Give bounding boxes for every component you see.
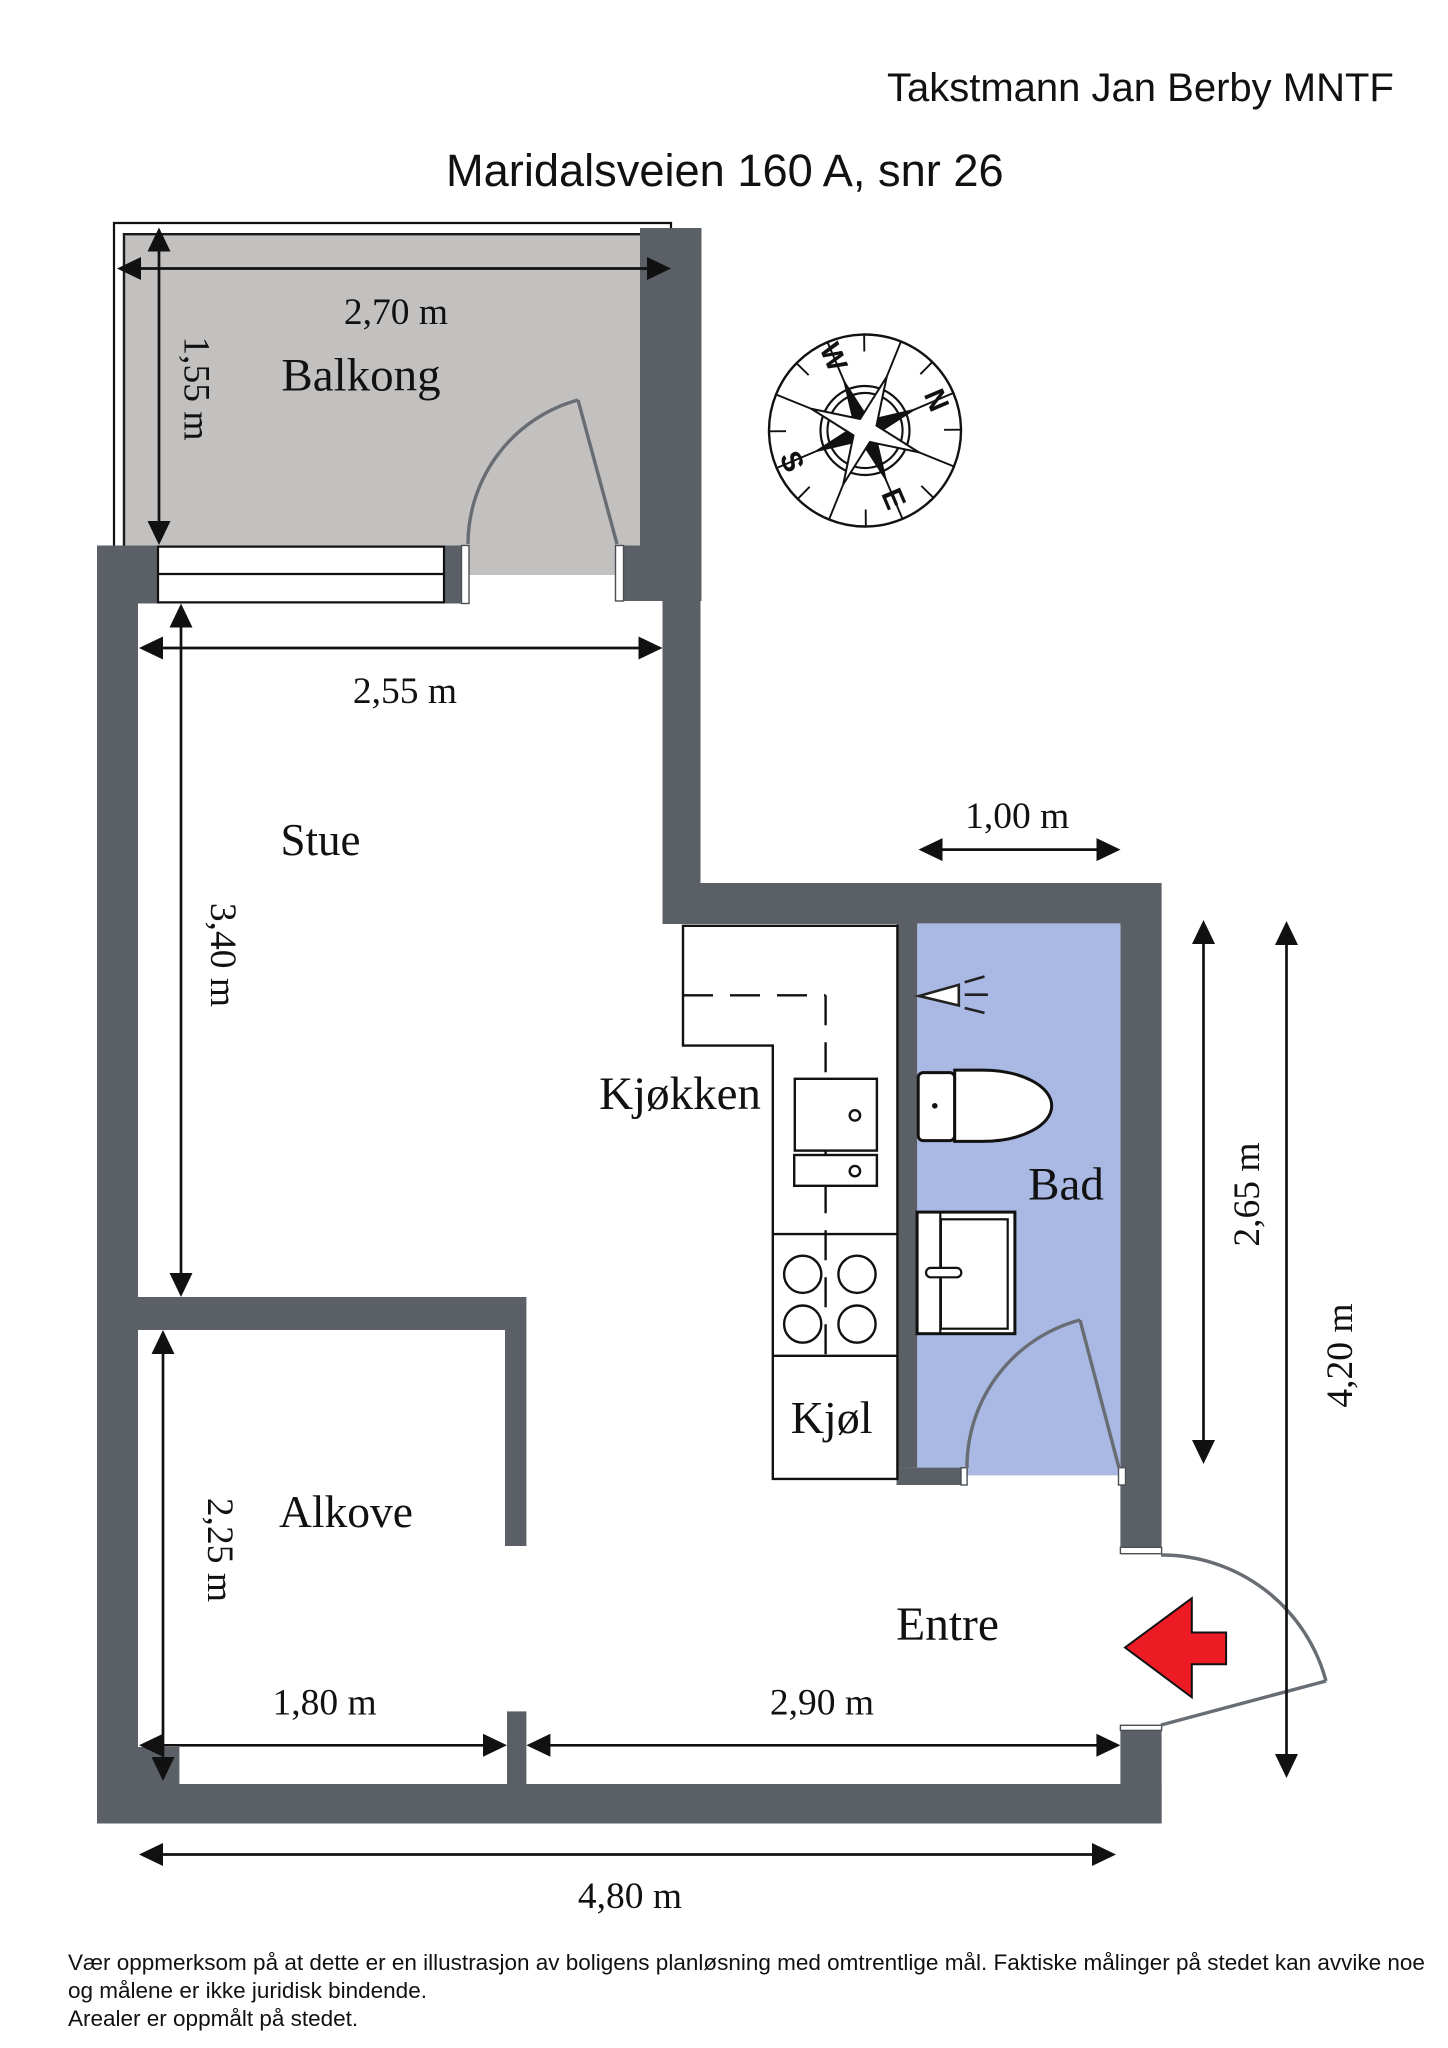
svg-text:2,90 m: 2,90 m [770,1683,874,1724]
svg-text:2,55 m: 2,55 m [353,671,457,712]
svg-text:Kjøkken: Kjøkken [599,1068,761,1120]
svg-text:Maridalsveien 160 A, snr 26: Maridalsveien 160 A, snr 26 [446,145,1004,196]
svg-text:2,70 m: 2,70 m [344,292,448,333]
svg-text:4,20 m: 4,20 m [1320,1303,1361,1407]
svg-text:2,25 m: 2,25 m [199,1498,240,1602]
svg-text:og målene er ikke juridisk bin: og målene er ikke juridisk bindende. [68,1978,427,2003]
svg-text:4,80 m: 4,80 m [578,1876,682,1917]
svg-text:1,55 m: 1,55 m [176,336,217,440]
svg-text:2,65 m: 2,65 m [1227,1142,1268,1246]
svg-text:1,00 m: 1,00 m [965,796,1069,837]
svg-text:Bad: Bad [1028,1159,1104,1211]
svg-text:Vær oppmerksom på at dette er: Vær oppmerksom på at dette er en illustr… [68,1950,1425,1975]
svg-text:Stue: Stue [280,815,360,865]
svg-text:Entre: Entre [896,1599,999,1651]
svg-text:Balkong: Balkong [281,350,440,402]
svg-text:3,40 m: 3,40 m [202,903,243,1007]
svg-text:Takstmann Jan Berby MNTF: Takstmann Jan Berby MNTF [887,66,1394,110]
svg-text:Kjøl: Kjøl [791,1392,873,1443]
svg-text:Alkove: Alkove [279,1486,413,1537]
svg-text:1,80 m: 1,80 m [273,1683,377,1724]
svg-text:Arealer er oppmålt på stedet.: Arealer er oppmålt på stedet. [68,2006,358,2031]
